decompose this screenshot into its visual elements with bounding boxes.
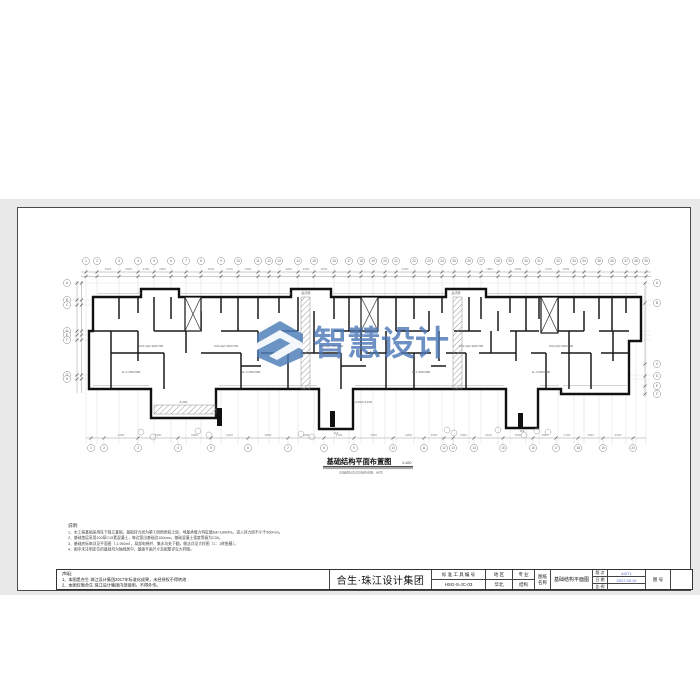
company-name: 合生·珠江设计集团	[329, 570, 431, 589]
svg-text:1: 1	[85, 259, 87, 263]
title-block: 声明: 1、本图是合生·珠江设计集团2017年标准化成果，未经授权不得转改 2、…	[56, 569, 693, 590]
svg-text:37: 37	[624, 259, 628, 263]
svg-text:26: 26	[467, 259, 471, 263]
svg-text:1500: 1500	[370, 433, 377, 437]
svg-text:4200: 4200	[285, 267, 292, 271]
drawing-sheet: 3300260021001800390027001500420033002600…	[17, 207, 691, 591]
svg-text:13: 13	[451, 446, 455, 450]
svg-text:1800: 1800	[515, 433, 522, 437]
sheet-number-label: 图 号	[645, 570, 670, 589]
page: { "page":{"backdrop_color":"#e9e9e9","sh…	[0, 0, 700, 700]
svg-text:2100: 2100	[402, 267, 409, 271]
svg-text:4: 4	[177, 446, 179, 450]
svg-text:2700: 2700	[226, 267, 233, 271]
svg-text:35: 35	[597, 259, 601, 263]
revision-cell: 版 次 A/0T1 日 期 2017.05.10 比 例	[592, 570, 645, 589]
svg-text:1500: 1500	[563, 267, 570, 271]
svg-text:22: 22	[412, 259, 416, 263]
scale-value	[608, 584, 645, 590]
svg-text:9: 9	[220, 259, 222, 263]
svg-text:2700: 2700	[564, 433, 571, 437]
svg-text:8: 8	[323, 446, 325, 450]
svg-text:11: 11	[256, 259, 260, 263]
region-label: 地 区	[486, 570, 512, 580]
svg-text:1800: 1800	[159, 267, 166, 271]
notes-header: 说明:	[68, 522, 438, 529]
svg-text:24: 24	[440, 259, 444, 263]
svg-text:JL-1 250×500: JL-1 250×500	[412, 370, 431, 374]
svg-text:4200: 4200	[615, 433, 622, 437]
svg-text:4200: 4200	[405, 433, 412, 437]
statement-line: 2、本图仅限合生·珠江设计集团内部使用，不得外传。	[62, 583, 329, 589]
svg-text:7: 7	[287, 446, 289, 450]
svg-text:1: 1	[90, 446, 92, 450]
svg-text:12: 12	[442, 446, 446, 450]
svg-text:10: 10	[236, 259, 240, 263]
svg-text:E: E	[656, 384, 658, 388]
svg-text:5: 5	[210, 446, 212, 450]
rev-value: A/0T1	[608, 570, 645, 576]
svg-text:9: 9	[353, 446, 355, 450]
svg-text:34: 34	[582, 259, 586, 263]
svg-text:2100: 2100	[143, 267, 150, 271]
svg-text:13: 13	[277, 259, 281, 263]
svg-text:JL-3 250×500: JL-3 250×500	[532, 370, 551, 374]
scale-label: 比 例	[593, 584, 608, 590]
rev-label: 版 次	[593, 570, 608, 576]
note-line: 4、图中未注明定位的基础均为轴线居中，基础平面尺寸及配筋详见大样图。	[68, 546, 438, 552]
svg-text:3: 3	[137, 446, 139, 450]
svg-text:15: 15	[312, 259, 316, 263]
svg-text:19: 19	[601, 446, 605, 450]
code-label: 标 准 工 具 编 号	[432, 570, 485, 580]
discipline-label: 专 业	[513, 570, 534, 580]
svg-text:3-3: 3-3	[520, 429, 525, 433]
svg-text:2100: 2100	[226, 433, 233, 437]
svg-text:6: 6	[247, 446, 249, 450]
discipline-value: 结构	[513, 580, 534, 589]
svg-text:JL-1 250×500: JL-1 250×500	[122, 370, 141, 374]
svg-text:36: 36	[610, 259, 614, 263]
svg-text:38: 38	[634, 259, 638, 263]
svg-text:21: 21	[394, 259, 398, 263]
svg-text:14: 14	[472, 446, 476, 450]
svg-text:2: 2	[96, 259, 98, 263]
svg-text:2-2: 2-2	[334, 431, 339, 435]
svg-text:4200: 4200	[118, 433, 125, 437]
svg-text:3: 3	[118, 259, 120, 263]
svg-text:30: 30	[524, 259, 528, 263]
svg-text:1800: 1800	[486, 267, 493, 271]
svg-text:17: 17	[554, 446, 558, 450]
svg-text:后浇带: 后浇带	[451, 290, 460, 295]
svg-text:33: 33	[572, 259, 576, 263]
drawing-name-label-2: 名称	[538, 580, 547, 586]
svg-text:5: 5	[153, 259, 155, 263]
plan-title-subtitle: （基础底标高详见结构说明，余同）	[337, 470, 385, 475]
drawing-name-label: 图纸 名称	[534, 570, 550, 589]
sheet-number-value	[670, 570, 692, 589]
svg-text:7: 7	[185, 259, 187, 263]
svg-text:JL-2 250×500: JL-2 250×500	[242, 370, 261, 374]
svg-text:23: 23	[427, 259, 431, 263]
code-value: HSG-S-JC-03	[432, 580, 485, 589]
svg-text:29: 29	[508, 259, 512, 263]
svg-text:31: 31	[537, 259, 541, 263]
svg-text:2600: 2600	[460, 433, 467, 437]
svg-text:28: 28	[496, 259, 500, 263]
svg-text:-4.200: -4.200	[179, 400, 188, 404]
svg-text:2700: 2700	[545, 267, 552, 271]
svg-text:25: 25	[452, 259, 456, 263]
svg-text:39: 39	[644, 259, 648, 263]
plan-title-scale: 1:100	[402, 461, 412, 465]
svg-text:8: 8	[200, 259, 202, 263]
svg-text:4-KL2(2) 300×700: 4-KL2(2) 300×700	[214, 344, 239, 348]
svg-text:4-KL3(2) 300×700: 4-KL3(2) 300×700	[319, 344, 344, 348]
svg-text:4-KL2(2) 300×700: 4-KL2(2) 300×700	[549, 344, 574, 348]
date-label: 日 期	[593, 577, 608, 583]
svg-text:1800: 1800	[265, 433, 272, 437]
standard-code-cell: 标 准 工 具 编 号 HSG-S-JC-03	[431, 570, 485, 589]
svg-text:4: 4	[137, 259, 139, 263]
svg-text:20: 20	[631, 446, 635, 450]
svg-text:11: 11	[422, 446, 426, 450]
svg-text:F: F	[66, 338, 68, 342]
svg-text:16: 16	[332, 259, 336, 263]
svg-text:B: B	[656, 301, 658, 305]
svg-text:4-KL1(2) 300×700: 4-KL1(2) 300×700	[459, 344, 484, 348]
svg-text:3300: 3300	[105, 267, 112, 271]
discipline-cell: 专 业 结构	[512, 570, 534, 589]
region-cell: 地 区 华北	[485, 570, 512, 589]
svg-text:32: 32	[556, 259, 560, 263]
svg-text:1500: 1500	[587, 433, 594, 437]
svg-text:18: 18	[359, 259, 363, 263]
date-value: 2017.05.10	[608, 577, 645, 583]
plan-title: 基础结构平面布置图	[326, 457, 392, 466]
drawing-name: 基础结构平面图	[550, 570, 592, 589]
svg-text:3300: 3300	[303, 267, 310, 271]
svg-text:20: 20	[383, 259, 387, 263]
svg-text:6: 6	[170, 259, 172, 263]
svg-text:3300: 3300	[431, 433, 438, 437]
plan-generated-geometry: 3300260021001800390027001500420033002600…	[63, 257, 660, 451]
svg-text:19: 19	[371, 259, 375, 263]
svg-text:3900: 3900	[208, 267, 215, 271]
svg-text:17: 17	[347, 259, 351, 263]
svg-text:2600: 2600	[191, 433, 198, 437]
general-notes: 说明: 1、本工程基础采用柱下独立基础，基础持力层为第②层粉质粘土层，地基承载力…	[68, 522, 438, 552]
svg-text:4-KL1(2) 300×700: 4-KL1(2) 300×700	[139, 344, 164, 348]
plan-title-group: 基础结构平面布置图 1:100 （基础底标高详见结构说明，余同）	[323, 457, 413, 475]
svg-text:1500: 1500	[245, 267, 252, 271]
svg-text:后浇带: 后浇带	[301, 290, 310, 295]
svg-text:F: F	[656, 392, 658, 396]
region-value: 华北	[486, 580, 512, 589]
svg-text:2: 2	[103, 446, 105, 450]
svg-text:10: 10	[391, 446, 395, 450]
svg-text:3900: 3900	[515, 267, 522, 271]
svg-text:18: 18	[576, 446, 580, 450]
svg-text:15: 15	[501, 446, 505, 450]
svg-text:16: 16	[531, 446, 535, 450]
svg-text:-4.200/-4.100: -4.200/-4.100	[354, 400, 372, 404]
svg-text:14: 14	[296, 259, 300, 263]
titleblock-statement-cell: 声明: 1、本图是合生·珠江设计集团2017年标准化成果，未经授权不得转改 2、…	[57, 570, 329, 589]
svg-text:2600: 2600	[321, 267, 328, 271]
svg-text:27: 27	[479, 259, 483, 263]
svg-text:2600: 2600	[125, 267, 132, 271]
svg-text:2100: 2100	[485, 433, 492, 437]
svg-text:12: 12	[267, 259, 271, 263]
